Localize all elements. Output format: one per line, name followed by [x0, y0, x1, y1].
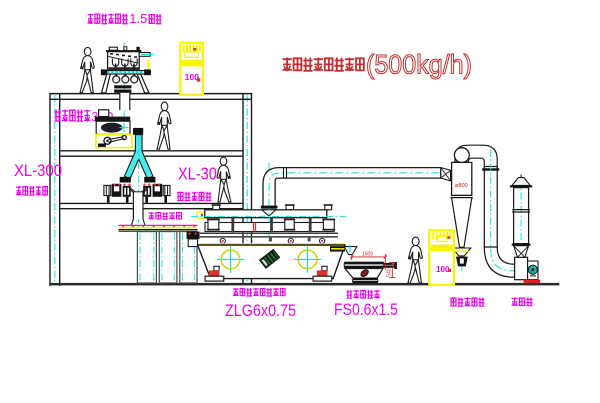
svg-text:(500kg/h): (500kg/h) — [366, 50, 472, 80]
svg-text:1.5: 1.5 — [129, 11, 147, 26]
svg-text:1500: 1500 — [362, 251, 373, 257]
svg-text:ø800: ø800 — [455, 183, 468, 189]
svg-text:540: 540 — [387, 268, 393, 277]
svg-text:FS0.6x1.5: FS0.6x1.5 — [334, 300, 398, 319]
svg-text:ZLG6x0.75: ZLG6x0.75 — [225, 301, 296, 320]
svg-text:XL-300: XL-300 — [14, 161, 62, 180]
